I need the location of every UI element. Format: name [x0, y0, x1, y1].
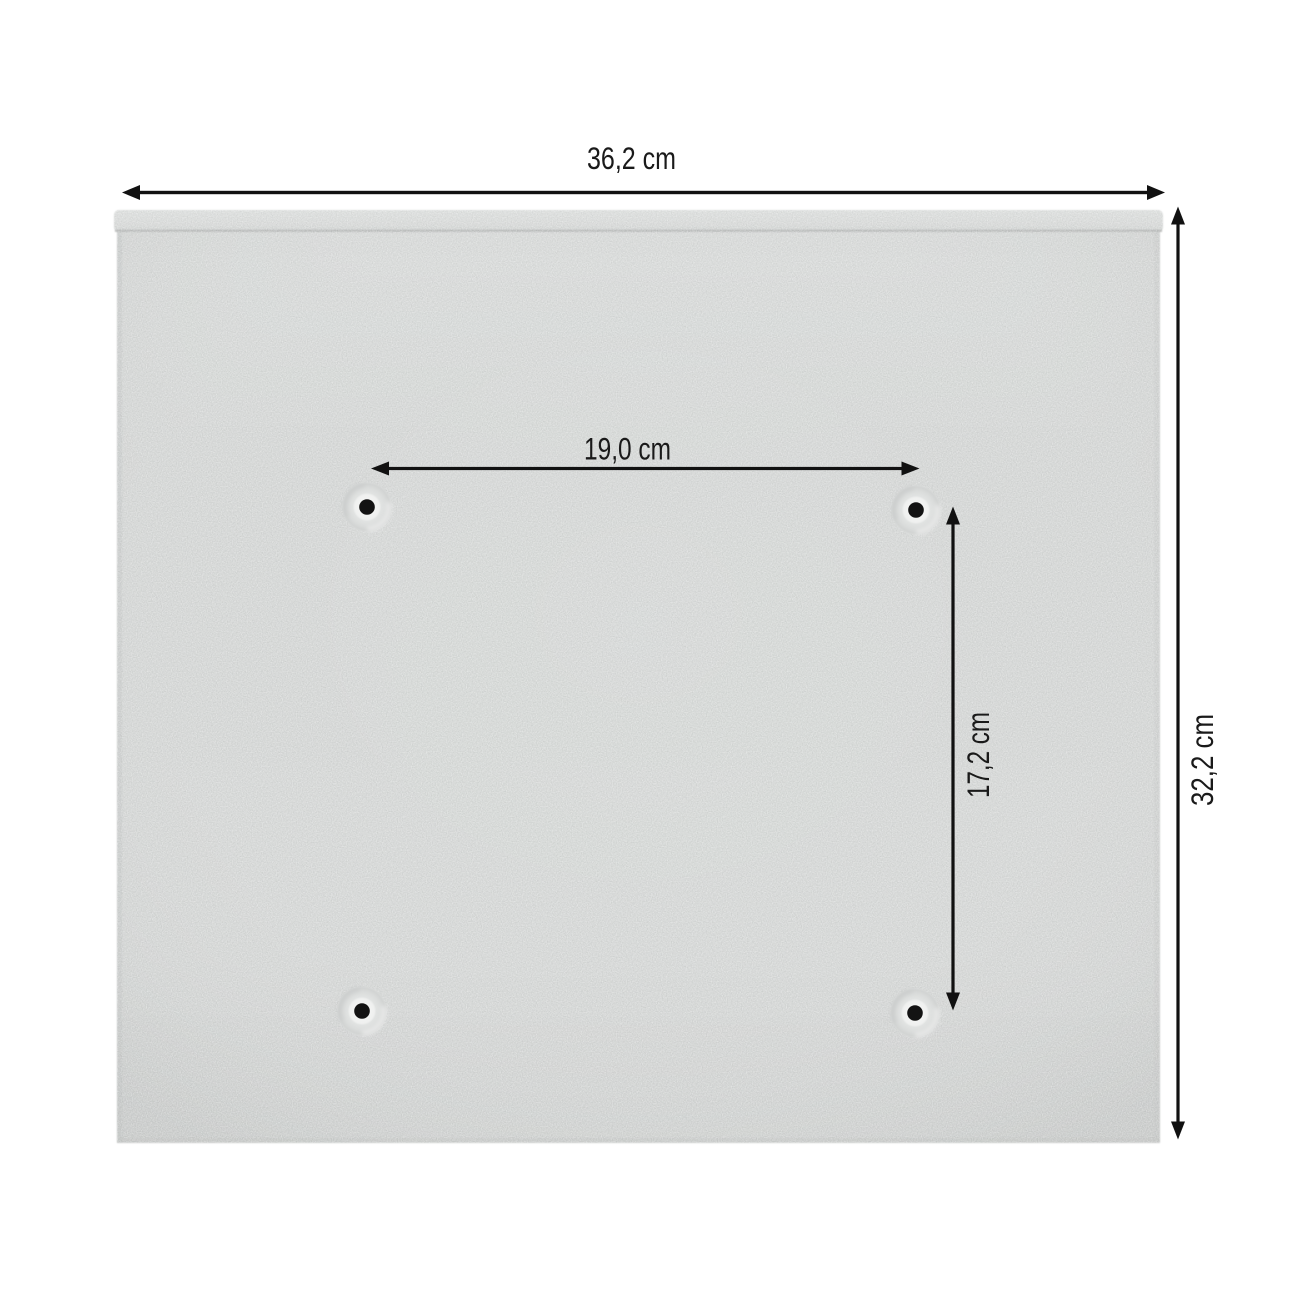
svg-text:32,2 cm: 32,2 cm [1184, 714, 1220, 806]
svg-text:19,0 cm: 19,0 cm [584, 431, 671, 467]
svg-text:17,2 cm: 17,2 cm [960, 712, 996, 798]
svg-text:36,2 cm: 36,2 cm [587, 140, 676, 176]
